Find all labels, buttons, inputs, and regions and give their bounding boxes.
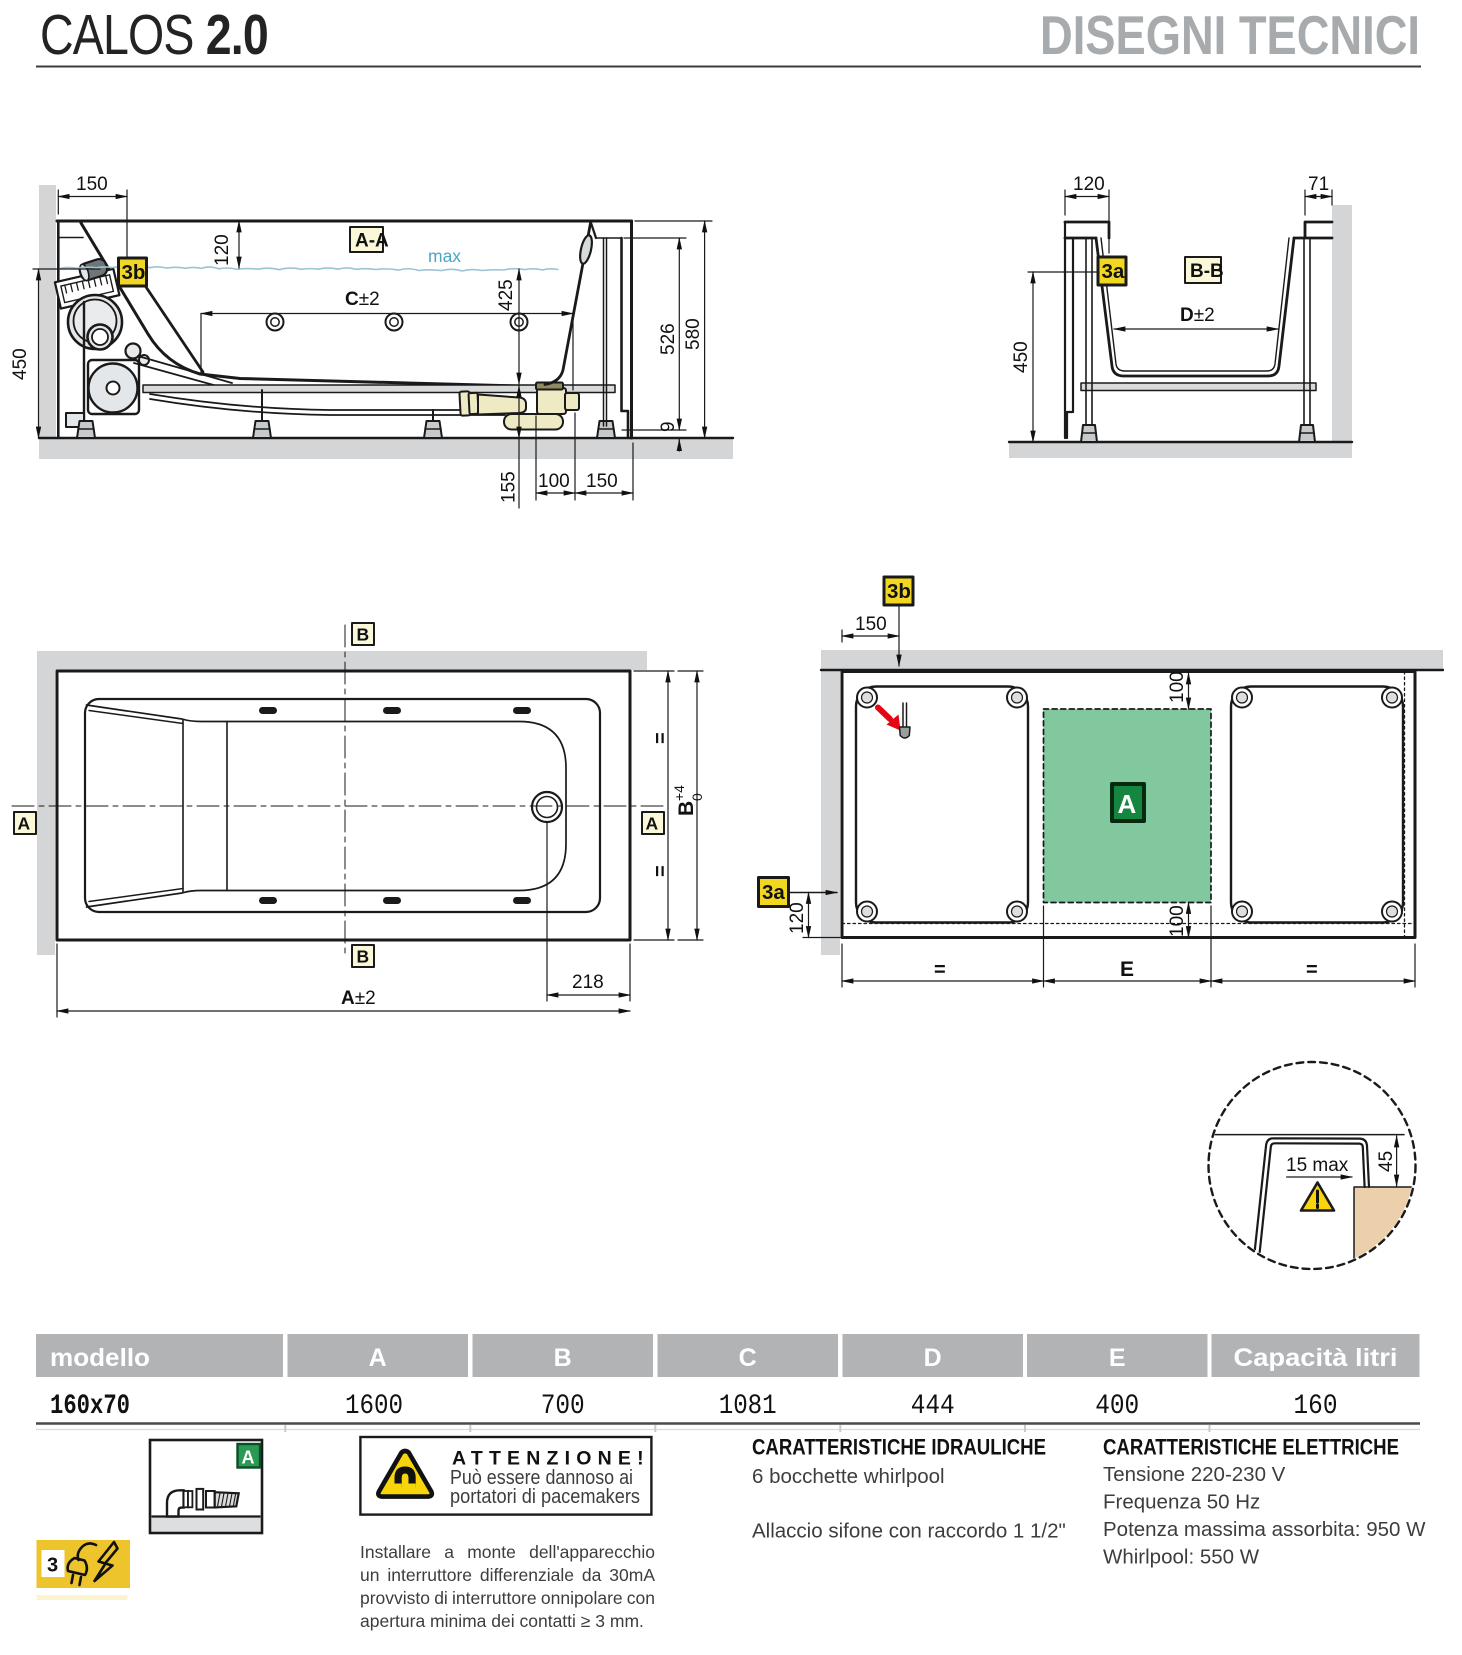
svg-text:B: B [357,625,370,645]
svg-text:1081: 1081 [719,1391,777,1422]
svg-text:218: 218 [572,972,604,993]
svg-text:120: 120 [1073,174,1105,195]
svg-text:0: 0 [689,793,705,801]
svg-text:provvistodiinterruttoreonnipol: provvistodiinterruttoreonnipolarecon [360,1588,655,1608]
svg-text:Potenza massima assorbita: 950: Potenza massima assorbita: 950 W [1103,1518,1426,1541]
svg-text:B: B [675,801,698,816]
svg-text:uninterruttoredifferenzialeda3: uninterruttoredifferenzialeda30mA [360,1565,655,1585]
svg-text:150: 150 [855,614,887,635]
svg-text:45: 45 [1376,1151,1397,1172]
svg-text:A-A: A-A [355,231,389,252]
svg-text:100: 100 [538,471,570,492]
svg-text:aperturaminimadeicontatti≥3mm.: aperturaminimadeicontatti≥3mm. [360,1611,644,1631]
svg-text:Tensione 220-230 V: Tensione 220-230 V [1103,1463,1286,1486]
svg-text:E: E [1120,958,1134,981]
svg-text:B: B [554,1344,572,1372]
svg-text:3b: 3b [122,261,146,284]
svg-text:580: 580 [683,318,704,350]
svg-text:CARATTERISTICHE ELETTRICHE: CARATTERISTICHE ELETTRICHE [1103,1435,1399,1460]
svg-text:=: = [1306,959,1318,981]
svg-text:3a: 3a [762,881,785,904]
svg-text:160x70: 160x70 [50,1391,130,1422]
svg-text:15 max: 15 max [1286,1155,1349,1176]
svg-text:A: A [1118,789,1137,819]
svg-text:160: 160 [1294,1391,1338,1422]
svg-text:A: A [369,1344,387,1372]
svg-text:150: 150 [586,471,618,492]
svg-text:400: 400 [1095,1391,1139,1422]
svg-text:444: 444 [911,1391,955,1422]
svg-text:526: 526 [658,323,679,355]
svg-text:modello: modello [50,1344,150,1372]
svg-text:3b: 3b [887,580,911,603]
svg-text:71: 71 [1308,174,1329,195]
svg-text:150: 150 [76,174,108,195]
svg-text:=: = [934,959,946,981]
svg-text:portatori di pacemakers: portatori di pacemakers [450,1486,640,1508]
svg-text:1600: 1600 [345,1391,403,1422]
svg-text:B-B: B-B [1190,261,1224,282]
svg-text:9: 9 [658,421,679,432]
svg-text:D±2: D±2 [1180,305,1215,326]
svg-text:A: A [646,814,659,834]
svg-text:3: 3 [47,1555,58,1577]
svg-text:DISEGNI TECNICI: DISEGNI TECNICI [1040,4,1420,66]
svg-text:700: 700 [541,1391,585,1422]
svg-text:155: 155 [499,471,520,503]
svg-text:Installareamontedell'apparecch: Installareamontedell'apparecchio [360,1542,655,1562]
svg-text:6 bocchette whirlpool: 6 bocchette whirlpool [752,1465,945,1488]
svg-text:A±2: A±2 [341,988,376,1009]
svg-text:450: 450 [10,348,31,380]
svg-text:Frequenza 50 Hz: Frequenza 50 Hz [1103,1491,1260,1514]
svg-text:Allaccio sifone con raccordo 1: Allaccio sifone con raccordo 1 1/2" [752,1520,1066,1543]
svg-text:120: 120 [212,234,233,266]
svg-text:CARATTERISTICHE IDRAULICHE: CARATTERISTICHE IDRAULICHE [752,1435,1046,1460]
svg-text:+4: +4 [671,785,687,801]
svg-text:Capacità litri: Capacità litri [1234,1344,1398,1372]
svg-text:=: = [650,732,672,744]
svg-text:max: max [428,246,461,266]
svg-text:C: C [739,1344,757,1372]
svg-text:450: 450 [1011,341,1032,373]
svg-text:B: B [357,947,370,967]
svg-text:425: 425 [496,279,517,311]
svg-text:D: D [924,1344,942,1372]
svg-text:E: E [1109,1344,1126,1372]
svg-text:100: 100 [1167,671,1188,703]
svg-text:A: A [18,814,31,834]
svg-text:CALOS 2.0: CALOS 2.0 [40,3,268,67]
svg-text:=: = [650,865,672,877]
svg-text:100: 100 [1167,905,1188,937]
svg-text:3a: 3a [1102,260,1125,283]
svg-text:120: 120 [787,902,808,934]
svg-text:Whirlpool: 550 W: Whirlpool: 550 W [1103,1546,1260,1569]
svg-text:C±2: C±2 [345,289,380,310]
svg-text:A: A [242,1448,255,1468]
